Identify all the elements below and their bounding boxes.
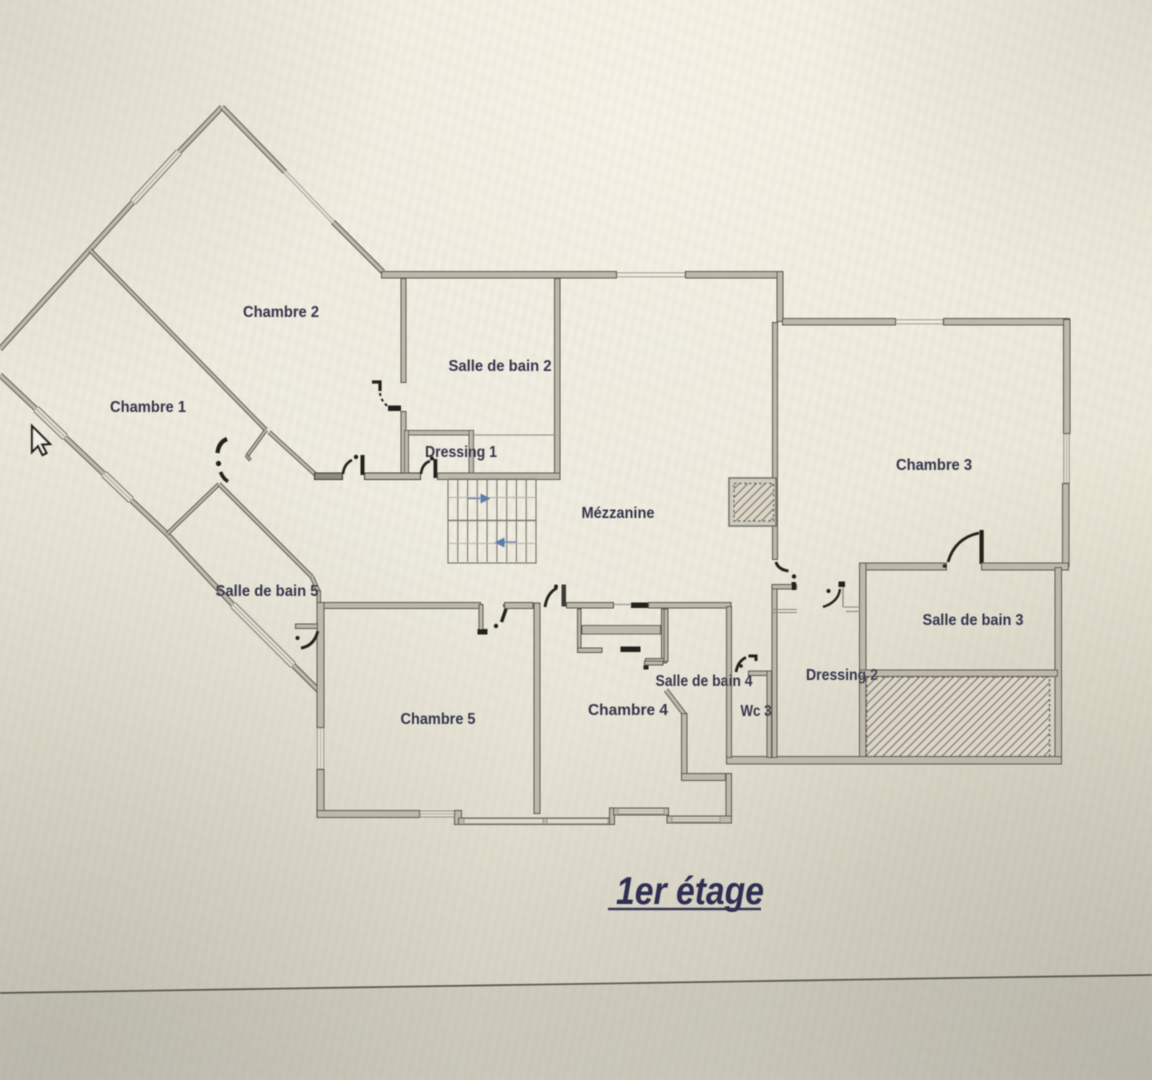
- svg-text:Wc 3: Wc 3: [741, 703, 772, 720]
- svg-text:Salle de bain 3: Salle de bain 3: [923, 612, 1024, 629]
- svg-text:Chambre 5: Chambre 5: [401, 711, 476, 728]
- svg-text:Mézzanine: Mézzanine: [582, 505, 655, 522]
- svg-text:Salle de bain 4: Salle de bain 4: [656, 673, 753, 690]
- svg-text:Dressing 1: Dressing 1: [425, 444, 497, 461]
- svg-text:Salle de bain 5: Salle de bain 5: [216, 583, 319, 600]
- svg-text:Chambre 1: Chambre 1: [110, 399, 186, 416]
- svg-text:Chambre 2: Chambre 2: [243, 304, 319, 321]
- svg-text:Salle de bain 2: Salle de bain 2: [449, 358, 552, 375]
- svg-text:Dressing 2: Dressing 2: [806, 667, 878, 684]
- svg-text:1er étage: 1er étage: [616, 870, 764, 913]
- svg-text:Chambre 3: Chambre 3: [896, 457, 972, 474]
- svg-text:Chambre 4: Chambre 4: [588, 702, 668, 719]
